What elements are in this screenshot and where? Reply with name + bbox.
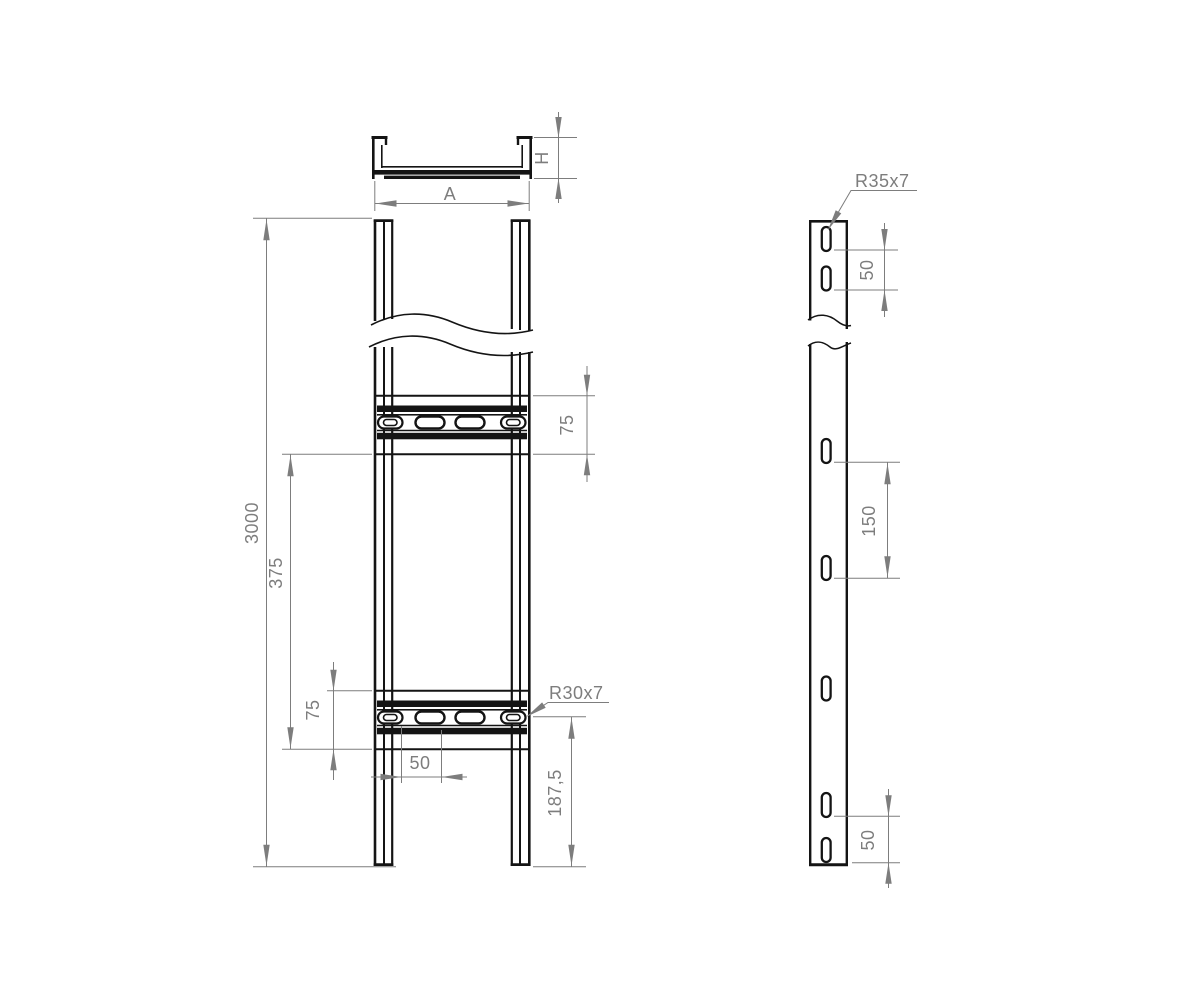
rung-upper (376, 396, 528, 455)
cross-section-view: A H (372, 112, 578, 211)
rung-slot (456, 712, 485, 724)
rung-slot (456, 417, 485, 429)
dim-label-end-distance: 187,5 (545, 769, 565, 817)
dim-end-distance: 187,5 (533, 717, 586, 867)
dim-label-rung-height-upper: 75 (557, 414, 577, 435)
rung-lower (376, 691, 528, 750)
rung-slot (416, 417, 445, 429)
dim-label-overall-length: 3000 (242, 502, 262, 544)
dim-side-pitch-top: 50 (834, 223, 898, 317)
rung-slot (416, 712, 445, 724)
dim-label-slot-pitch-front: 50 (409, 753, 430, 773)
side-slot (822, 793, 831, 817)
dim-label-r35x7: R35x7 (855, 171, 910, 191)
dim-width-a: A (375, 181, 529, 211)
dim-label-width-a: A (444, 184, 457, 204)
side-slot (822, 556, 831, 580)
rung-slot-inner (507, 420, 521, 426)
rung-slot-inner (384, 715, 398, 721)
channel-profile (372, 136, 533, 179)
leader-r30x7: R30x7 (525, 683, 609, 719)
side-rail-profile (808, 220, 851, 866)
side-slot (822, 439, 831, 463)
rung-slot-inner (384, 420, 398, 426)
dim-label-r30x7: R30x7 (549, 683, 604, 703)
dim-rung-height-upper: 75 (533, 366, 595, 482)
side-rail-slots (822, 227, 831, 862)
cable-ladder-technical-drawing: A H (0, 0, 1200, 1000)
ladder-right-rail (511, 220, 531, 867)
dim-overall-length: 3000 (242, 218, 396, 867)
front-view: 3000 375 75 75 (242, 218, 609, 867)
side-slot (822, 838, 831, 862)
drawing-canvas: A H (0, 0, 1200, 1000)
break-lines (369, 314, 533, 355)
dim-label-height-h: H (532, 151, 552, 165)
dim-height-h: H (532, 112, 577, 203)
side-slot (822, 267, 831, 291)
dim-label-rung-height-lower: 75 (303, 699, 323, 720)
dim-side-pitch-bottom: 50 (834, 789, 900, 888)
dim-label-side-pitch-bottom: 50 (858, 829, 878, 850)
dim-label-side-pitch-top: 50 (857, 259, 877, 280)
dim-slot-pitch-front: 50 (371, 726, 467, 783)
side-view: R35x7 50 150 50 (808, 171, 917, 888)
dim-rung-height-lower: 75 (303, 662, 372, 780)
dim-label-rung-pitch: 375 (266, 557, 286, 589)
dim-side-pitch-mid: 150 (834, 462, 900, 578)
side-slot (822, 227, 831, 251)
dim-label-side-pitch-mid: 150 (859, 505, 879, 537)
side-slot (822, 677, 831, 701)
rung-slot-inner (507, 715, 521, 721)
